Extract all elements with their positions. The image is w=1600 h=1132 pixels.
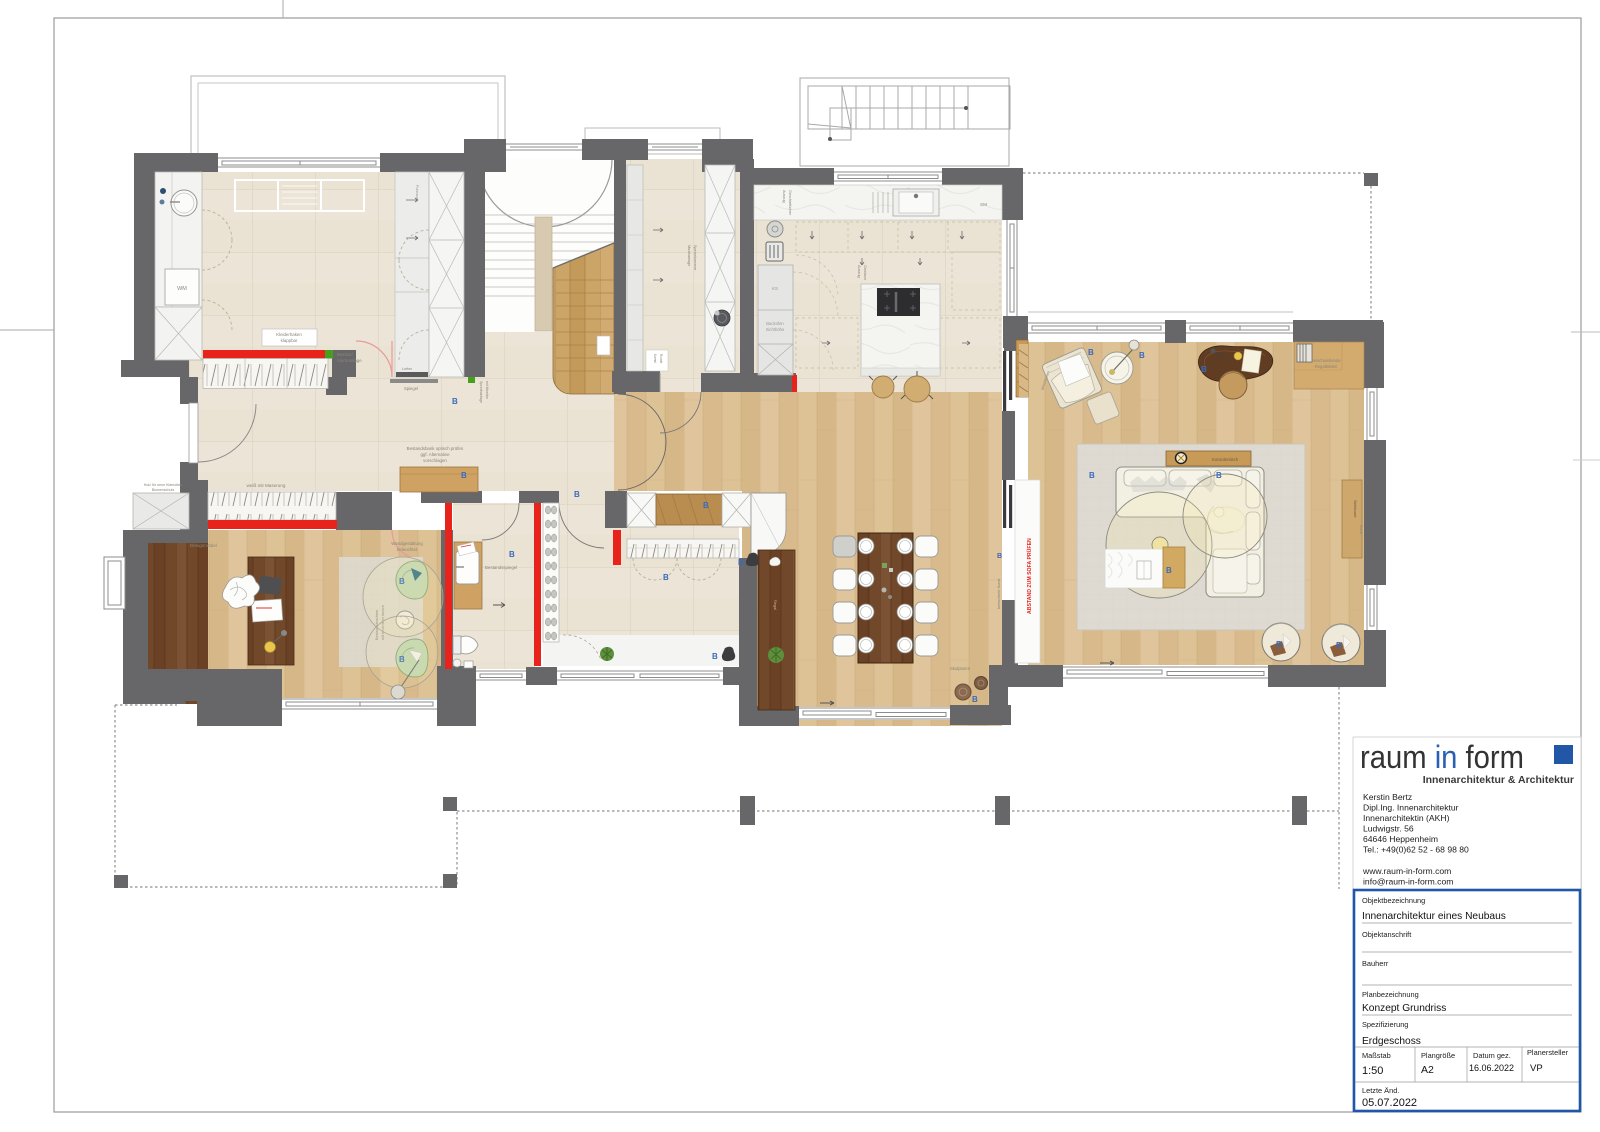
svg-text:Bestandsspiegel: Bestandsspiegel <box>485 565 517 570</box>
svg-text:Spezifizierung: Spezifizierung <box>1362 1020 1408 1029</box>
svg-text:1:50: 1:50 <box>1362 1065 1383 1077</box>
svg-text:Designmöbel: Designmöbel <box>190 543 217 548</box>
svg-text:Erdgeschoss: Erdgeschoss <box>1362 1036 1421 1047</box>
svg-text:Holz für neue Klamotten: Holz für neue Klamotten <box>144 483 183 487</box>
svg-text:Bauherr: Bauherr <box>1362 959 1389 968</box>
svg-text:Kerstin Bertz: Kerstin Bertz <box>1363 792 1412 802</box>
svg-text:Wandgestaltung: Wandgestaltung <box>391 541 423 546</box>
svg-text:Sichthöhe: Sichthöhe <box>766 327 785 332</box>
svg-text:Kamel: Kamel <box>653 354 657 363</box>
svg-text:Maßstab: Maßstab <box>1362 1051 1391 1060</box>
svg-text:Musikanlage: Musikanlage <box>687 245 691 266</box>
svg-text:Auszug: Auszug <box>857 265 861 278</box>
svg-text:B: B <box>1216 471 1222 480</box>
svg-text:B: B <box>509 550 515 559</box>
svg-text:freischwebende: freischwebende <box>1311 358 1341 363</box>
svg-text:Innenarchitektin (AKH): Innenarchitektin (AKH) <box>1363 813 1450 823</box>
svg-text:A2: A2 <box>1421 1064 1434 1076</box>
svg-text:KS: KS <box>772 286 778 291</box>
svg-text:Backofen: Backofen <box>766 321 784 326</box>
svg-text:VP: VP <box>1530 1063 1543 1074</box>
svg-text:Sideboard: Sideboard <box>1353 500 1357 517</box>
svg-text:Skulpturen: Skulpturen <box>950 666 971 671</box>
svg-text:Tel.: +49(0)62 52 - 68 98 80: Tel.: +49(0)62 52 - 68 98 80 <box>1363 845 1469 855</box>
svg-text:Putzraum: Putzraum <box>415 185 419 200</box>
svg-text:B: B <box>997 553 1002 560</box>
svg-text:Konsolentisch: Konsolentisch <box>1212 457 1239 462</box>
svg-text:B: B <box>461 471 467 480</box>
svg-text:Innenarchitektur eines Neubaus: Innenarchitektur eines Neubaus <box>1362 911 1506 922</box>
svg-text:B: B <box>712 652 718 661</box>
svg-text:Ludwigstr. 56: Ludwigstr. 56 <box>1363 824 1414 834</box>
svg-text:SM: SM <box>980 202 987 207</box>
svg-text:info@raum-in-form.com: info@raum-in-form.com <box>1363 877 1453 887</box>
svg-text:B: B <box>1336 641 1342 650</box>
svg-text:B: B <box>1089 471 1095 480</box>
svg-text:Speisekammer: Speisekammer <box>693 245 697 271</box>
svg-text:Letzte Änd.: Letzte Änd. <box>1362 1086 1399 1095</box>
svg-text:B: B <box>452 397 458 406</box>
svg-text:Geschirrtücher: Geschirrtücher <box>788 190 792 216</box>
svg-text:B: B <box>1166 566 1172 575</box>
svg-text:B: B <box>1088 348 1094 357</box>
svg-text:Blumenschutz: Blumenschutz <box>152 488 175 492</box>
svg-text:Alarmanlage: Alarmanlage <box>337 358 362 363</box>
svg-text:B: B <box>574 490 580 499</box>
svg-text:B: B <box>1139 351 1145 360</box>
svg-text:B: B <box>972 695 978 704</box>
svg-text:Leiter: Leiter <box>402 366 413 371</box>
svg-text:Auszug: Auszug <box>782 190 786 203</box>
svg-text:Runde: Runde <box>659 354 663 364</box>
svg-text:16.06.2022: 16.06.2022 <box>1469 1063 1514 1073</box>
svg-text:Datum gez.: Datum gez. <box>1473 1051 1511 1060</box>
svg-text:Kunst: Kunst <box>1359 525 1363 534</box>
svg-text:beleuchtet: beleuchtet <box>397 547 418 552</box>
svg-text:B: B <box>1201 365 1207 374</box>
svg-text:Plangröße: Plangröße <box>1421 1051 1455 1060</box>
svg-text:Gewürze: Gewürze <box>863 265 867 280</box>
svg-text:Planersteller: Planersteller <box>1527 1048 1569 1057</box>
svg-text:ABSTAND ZUM SOFA PRÜFEN: ABSTAND ZUM SOFA PRÜFEN <box>1026 538 1033 614</box>
svg-text:Konzept Grundriss: Konzept Grundriss <box>1362 1003 1446 1014</box>
svg-text:B: B <box>738 558 744 567</box>
svg-text:Regal: Regal <box>773 600 777 610</box>
svg-text:weiß mit Maserung: weiß mit Maserung <box>247 483 286 488</box>
svg-text:Objektanschrift: Objektanschrift <box>1362 930 1411 939</box>
svg-text:Regalböden: Regalböden <box>1315 364 1338 369</box>
svg-text:ggf. Alternative: ggf. Alternative <box>420 452 450 457</box>
svg-text:Dipl.Ing. Innenarchitektur: Dipl.Ing. Innenarchitektur <box>1363 803 1459 813</box>
svg-text:WM: WM <box>177 286 187 292</box>
svg-text:vorschlagen: vorschlagen <box>423 458 447 463</box>
svg-text:Innenarchitektur & Architektur: Innenarchitektur & Architektur <box>1423 774 1574 786</box>
svg-text:klappbar: klappbar <box>281 338 298 343</box>
svg-text:mit Monitor: mit Monitor <box>485 381 489 400</box>
svg-text:64646 Heppenheim: 64646 Heppenheim <box>1363 834 1438 844</box>
svg-text:raum in form: raum in form <box>1360 739 1524 775</box>
svg-text:B: B <box>1276 640 1282 649</box>
svg-text:Planbezeichnung: Planbezeichnung <box>1362 990 1419 999</box>
svg-text:Sprechanlage: Sprechanlage <box>479 381 483 403</box>
svg-text:Bestandsbank optisch prüfen: Bestandsbank optisch prüfen <box>407 446 464 451</box>
svg-text:Spiegel: Spiegel <box>404 386 418 391</box>
svg-text:Kleiderhaken: Kleiderhaken <box>276 332 302 337</box>
svg-text:beleuchtete Kunst: beleuchtete Kunst <box>997 578 1001 609</box>
svg-text:Monitor/: Monitor/ <box>337 352 354 357</box>
svg-text:www.raum-in-form.com: www.raum-in-form.com <box>1362 866 1451 876</box>
svg-text:Objektbezeichnung: Objektbezeichnung <box>1362 896 1425 905</box>
svg-text:B: B <box>703 501 709 510</box>
svg-text:B: B <box>663 573 669 582</box>
svg-text:05.07.2022: 05.07.2022 <box>1362 1097 1417 1109</box>
